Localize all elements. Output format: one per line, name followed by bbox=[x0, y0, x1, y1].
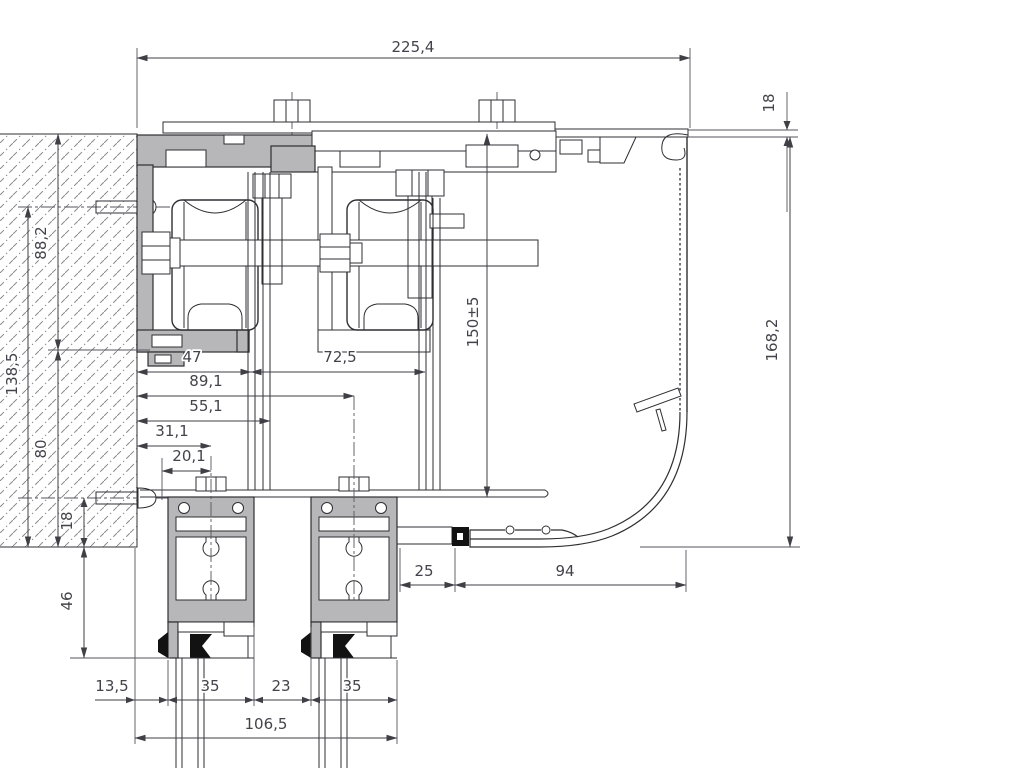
leaf-2-glazing-bead bbox=[321, 622, 367, 632]
glass-leaf-2 bbox=[319, 658, 347, 768]
dim-wall-bottom-offset-label: 18 bbox=[58, 511, 76, 530]
dim-cover-height-label: 168,2 bbox=[763, 319, 781, 362]
track-clamp-block bbox=[271, 146, 315, 172]
seal-block-core bbox=[457, 533, 463, 540]
fascia-hook-d bbox=[662, 134, 688, 160]
fascia-hook-b bbox=[588, 150, 600, 162]
dim-leaf-drop-label: 46 bbox=[58, 591, 76, 610]
sill-clip-2 bbox=[542, 526, 550, 534]
track-channel-3 bbox=[466, 145, 518, 167]
dim-overall-width-label: 225,4 bbox=[392, 38, 435, 56]
door-leaf-2 bbox=[301, 477, 397, 768]
glass-leaf-1 bbox=[176, 658, 204, 768]
dim-cover-height: 168,2 bbox=[763, 137, 790, 547]
axle-stub bbox=[350, 243, 362, 263]
dim-suspension-height: 150±5 bbox=[464, 134, 487, 497]
brush-seal bbox=[397, 527, 469, 546]
fascia-hook-a bbox=[560, 140, 582, 154]
fascia-clip bbox=[634, 388, 681, 412]
dim-sill-width: 94 bbox=[455, 562, 686, 585]
fascia-curve-inner bbox=[470, 412, 680, 539]
fascia-hook-c bbox=[600, 137, 636, 163]
leaf-1-pocket-wall bbox=[168, 622, 178, 658]
dim-leaf1-axis-label: 31,1 bbox=[155, 422, 188, 440]
door-leaf-1 bbox=[158, 477, 254, 768]
dim-leaf-assembly-width: 106,5 bbox=[135, 715, 397, 738]
fascia-curve-outer bbox=[470, 412, 687, 547]
dim-cover-lip-label: 18 bbox=[760, 93, 778, 112]
dim-leaf-gap-label: 23 bbox=[271, 677, 290, 695]
dim-leaf1-axis: 31,1 bbox=[137, 422, 211, 446]
dim-overall-width: 225,4 bbox=[137, 38, 690, 58]
dim-leaf2-width-label: 35 bbox=[342, 677, 361, 695]
dim-sill-clearance-label: 25 bbox=[414, 562, 433, 580]
track-foot-slot bbox=[152, 335, 182, 347]
track-screw-port bbox=[530, 150, 540, 160]
leaf-2-pocket-wall bbox=[311, 622, 321, 658]
leaf-2-pocket-step bbox=[367, 622, 397, 636]
dim-wall-upper-label: 88,2 bbox=[32, 226, 50, 259]
dim-roller-spacing-label: 72,5 bbox=[323, 348, 356, 366]
dim-leaf-chain: 13,5 35 23 35 bbox=[95, 677, 397, 703]
track-slot bbox=[224, 135, 244, 144]
dim-bracket-offset-label: 55,1 bbox=[189, 397, 222, 415]
dim-leaf1-inner-offset: 20,1 bbox=[162, 447, 211, 471]
wall-section bbox=[0, 134, 137, 547]
leaf-1-pocket-step bbox=[224, 622, 254, 636]
dim-leaf-assembly-width-label: 106,5 bbox=[245, 715, 288, 733]
section-drawing: 225,4 18 168,2 150±5 88,2 80 138,5 bbox=[0, 0, 1024, 768]
dim-wall-lower-label: 80 bbox=[32, 439, 50, 458]
dim-bracket-offset: 55,1 bbox=[137, 397, 270, 421]
leaf-1-glazing-bead bbox=[178, 622, 224, 632]
leaf-1-side-gasket bbox=[158, 632, 168, 658]
track-channel-1 bbox=[166, 150, 206, 167]
dim-wall-to-leaf1-label: 13,5 bbox=[95, 677, 128, 695]
fascia-profile bbox=[470, 134, 688, 547]
axle-nut-mid bbox=[320, 234, 350, 272]
screw-bottom-head bbox=[138, 488, 156, 508]
dim-leaf-drop: 46 bbox=[58, 547, 84, 658]
dim-leaf1-width-label: 35 bbox=[200, 677, 219, 695]
dim-roller1-offset-label: 47 bbox=[182, 348, 201, 366]
axle-washer-left bbox=[170, 238, 180, 268]
dim-cover-lip: 18 bbox=[760, 93, 791, 146]
wall-hatch bbox=[0, 134, 137, 547]
track-bottom-tab-slot bbox=[155, 355, 171, 363]
dim-sill-width-label: 94 bbox=[555, 562, 574, 580]
dim-leaf2-axis: 89,1 bbox=[137, 372, 354, 396]
track-channel-2 bbox=[340, 151, 380, 167]
technical-drawing-page: 225,4 18 168,2 150±5 88,2 80 138,5 bbox=[0, 0, 1024, 768]
dim-wall-anchor-label: 138,5 bbox=[3, 353, 21, 396]
leaf-2-gasket bbox=[333, 634, 355, 658]
dim-sill-clearance: 25 bbox=[400, 562, 455, 585]
axle-nut-left bbox=[142, 232, 170, 274]
dim-suspension-height-label: 150±5 bbox=[464, 297, 482, 348]
dim-leaf2-axis-label: 89,1 bbox=[189, 372, 222, 390]
leaf-2-side-gasket bbox=[301, 632, 311, 658]
dim-leaf1-inner-offset-label: 20,1 bbox=[172, 447, 205, 465]
hanger-bracket-2 bbox=[430, 214, 464, 228]
leaf-1-gasket bbox=[190, 634, 212, 658]
fascia-clip-pin bbox=[656, 409, 666, 431]
sill-clip-1 bbox=[506, 526, 514, 534]
